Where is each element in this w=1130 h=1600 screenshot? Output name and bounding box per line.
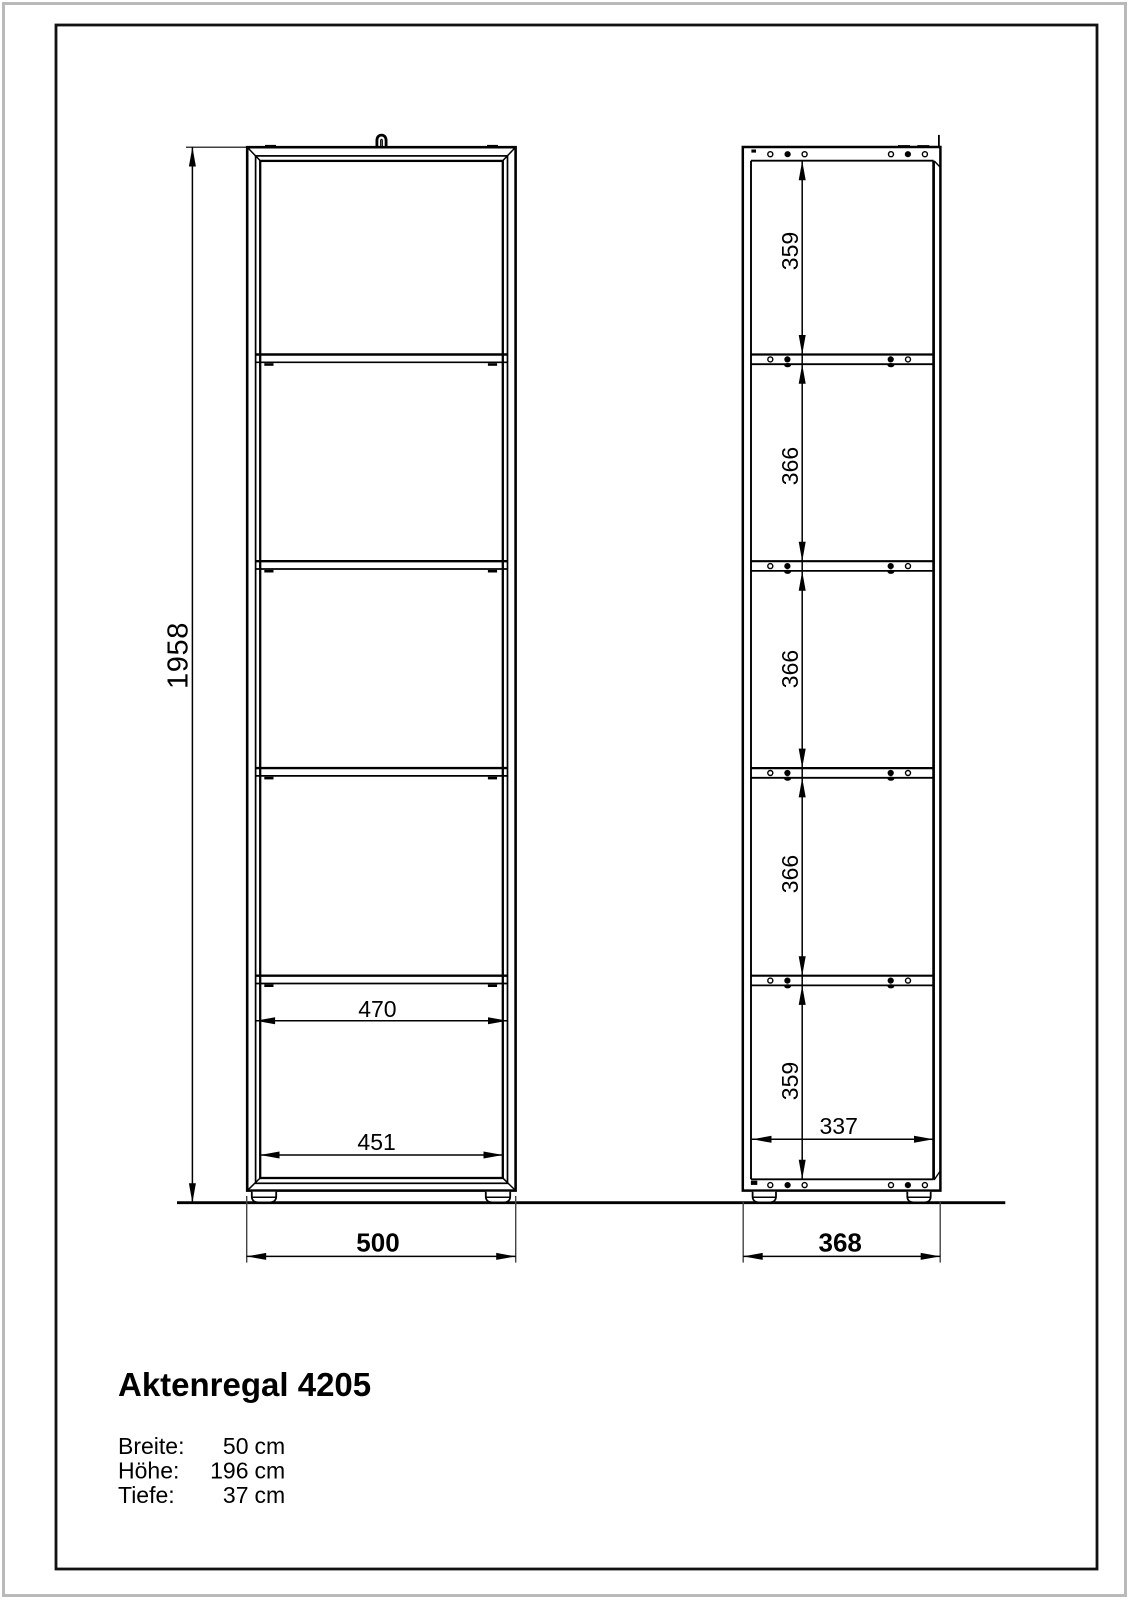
svg-text:Höhe:: Höhe: [118,1458,179,1484]
svg-text:37: 37 [223,1482,249,1508]
svg-text:196: 196 [210,1458,248,1484]
svg-text:cm: cm [255,1482,286,1508]
svg-text:500: 500 [356,1228,399,1258]
svg-text:Tiefe:: Tiefe: [118,1482,175,1508]
svg-text:cm: cm [255,1433,286,1459]
svg-text:1958: 1958 [163,622,195,689]
svg-text:Aktenregal 4205: Aktenregal 4205 [118,1366,371,1403]
svg-text:cm: cm [255,1458,286,1484]
svg-text:451: 451 [357,1129,395,1155]
svg-text:368: 368 [819,1228,862,1258]
svg-text:337: 337 [820,1113,858,1139]
svg-text:359: 359 [777,1062,803,1100]
svg-text:Breite:: Breite: [118,1433,184,1459]
svg-text:50: 50 [223,1433,249,1459]
svg-text:366: 366 [777,650,803,688]
svg-text:366: 366 [777,855,803,893]
svg-text:470: 470 [358,996,396,1022]
svg-text:359: 359 [777,232,803,270]
svg-text:366: 366 [777,447,803,485]
